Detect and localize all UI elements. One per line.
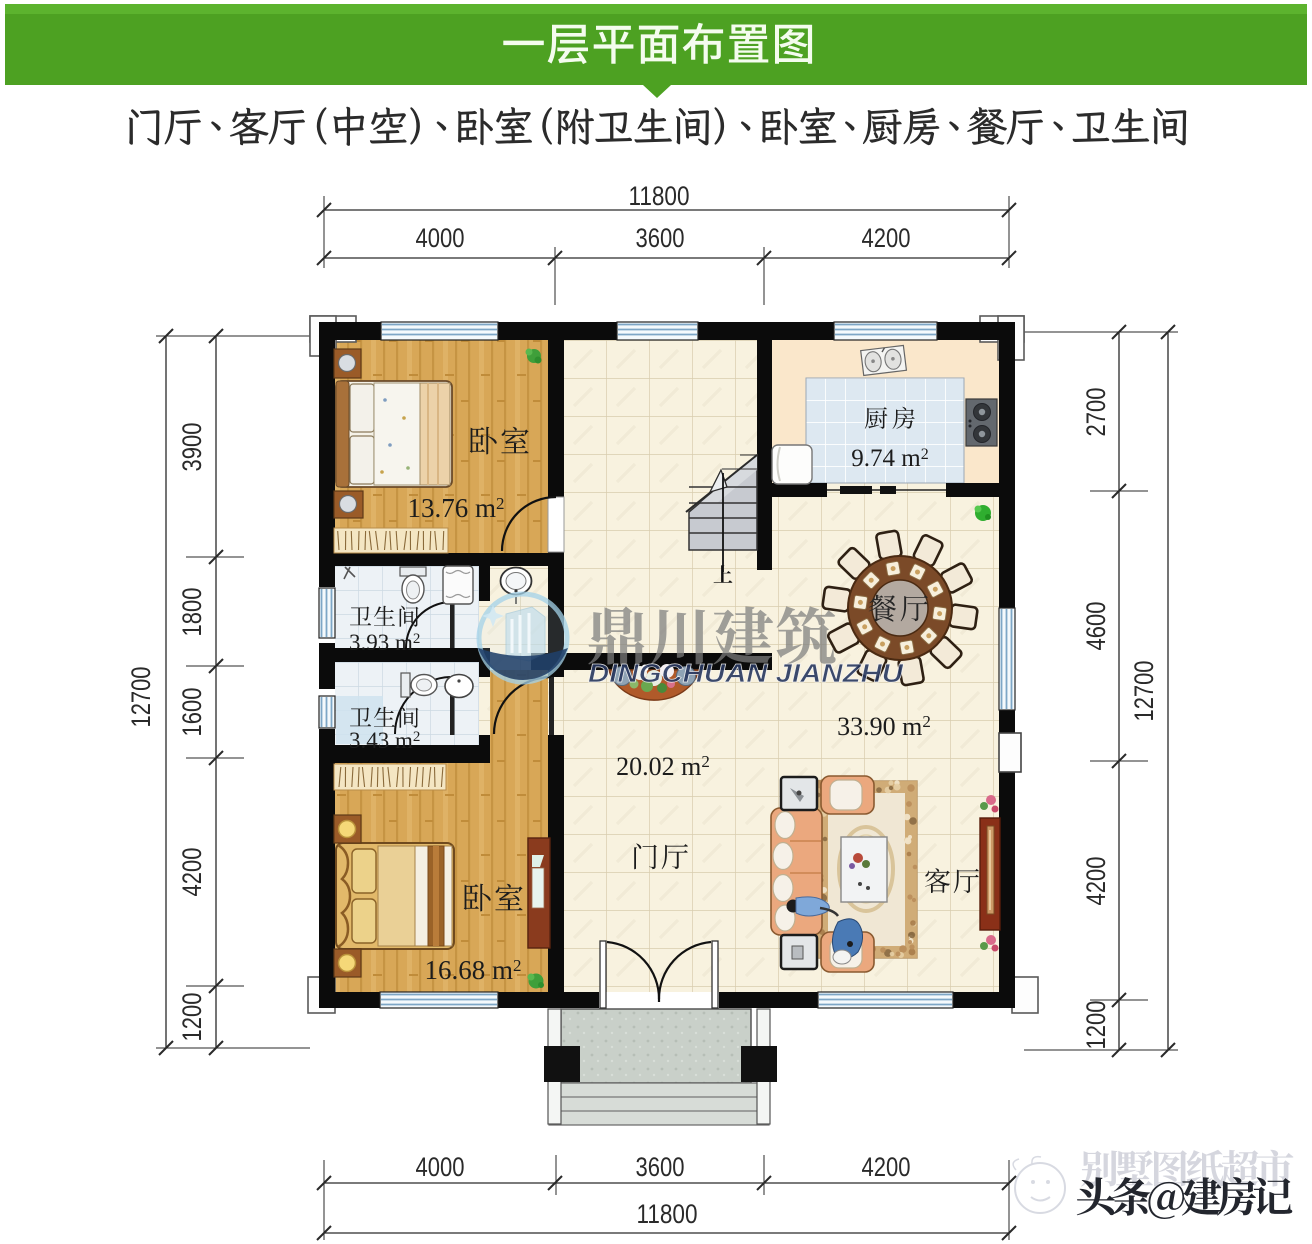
svg-text:2700: 2700: [1081, 388, 1111, 437]
svg-text:1600: 1600: [177, 688, 207, 737]
svg-text:DINGCHUAN JIANZHU: DINGCHUAN JIANZHU: [588, 658, 904, 688]
svg-text:3600: 3600: [636, 223, 685, 253]
svg-text:3600: 3600: [636, 1152, 685, 1182]
svg-text:11800: 11800: [629, 181, 690, 211]
svg-text:11800: 11800: [637, 1199, 698, 1229]
svg-text:3.93 m2: 3.93 m2: [349, 630, 420, 655]
svg-text:12700: 12700: [1129, 661, 1159, 722]
svg-text:1200: 1200: [177, 993, 207, 1042]
svg-text:9.74 m2: 9.74 m2: [851, 445, 928, 472]
svg-text:4200: 4200: [177, 848, 207, 897]
svg-text:12700: 12700: [126, 667, 156, 728]
svg-text:3.43 m2: 3.43 m2: [349, 728, 420, 753]
svg-text:20.02 m2: 20.02 m2: [616, 752, 710, 781]
svg-text:13.76 m2: 13.76 m2: [407, 493, 504, 523]
svg-text:33.90 m2: 33.90 m2: [837, 712, 931, 741]
svg-text:3900: 3900: [177, 423, 207, 472]
svg-text:4200: 4200: [862, 223, 911, 253]
svg-text:4200: 4200: [862, 1152, 911, 1182]
svg-text:4600: 4600: [1081, 602, 1111, 651]
svg-text:1200: 1200: [1081, 1001, 1111, 1050]
svg-text:4000: 4000: [416, 223, 465, 253]
svg-text:16.68 m2: 16.68 m2: [424, 955, 521, 985]
svg-text:1800: 1800: [177, 588, 207, 637]
svg-text:4200: 4200: [1081, 857, 1111, 906]
svg-text:4000: 4000: [416, 1152, 465, 1182]
